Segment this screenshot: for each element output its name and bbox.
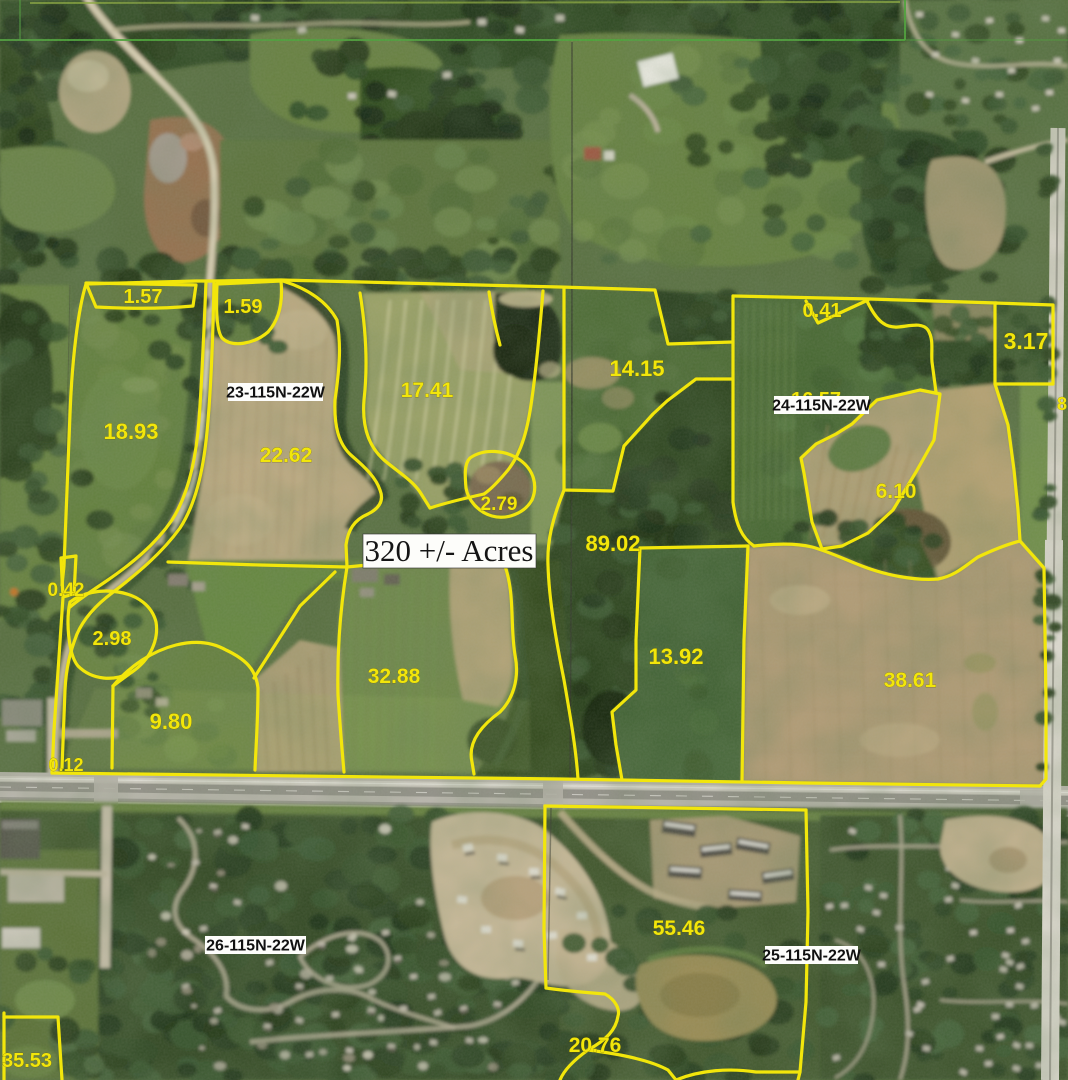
svg-text:22.62: 22.62 bbox=[260, 444, 313, 467]
svg-text:14.15: 14.15 bbox=[609, 356, 664, 381]
svg-text:25-115N-22W: 25-115N-22W bbox=[762, 948, 862, 965]
svg-text:9.80: 9.80 bbox=[150, 709, 193, 734]
svg-text:55.46: 55.46 bbox=[653, 917, 706, 940]
svg-text:0.41: 0.41 bbox=[803, 300, 842, 322]
svg-text:20.76: 20.76 bbox=[569, 1034, 622, 1057]
svg-text:6.10: 6.10 bbox=[876, 480, 917, 503]
svg-text:2.98: 2.98 bbox=[93, 628, 132, 650]
svg-text:32.88: 32.88 bbox=[368, 665, 421, 688]
svg-text:8: 8 bbox=[1057, 394, 1067, 414]
svg-text:26-115N-22W: 26-115N-22W bbox=[206, 938, 306, 955]
svg-text:24-115N-22W: 24-115N-22W bbox=[772, 398, 872, 415]
svg-text:0.42: 0.42 bbox=[48, 580, 85, 601]
svg-text:2.79: 2.79 bbox=[481, 494, 518, 515]
svg-text:89.02: 89.02 bbox=[585, 531, 640, 556]
svg-text:320 +/- Acres: 320 +/- Acres bbox=[364, 533, 533, 568]
svg-text:0.12: 0.12 bbox=[48, 755, 83, 775]
svg-text:1.59: 1.59 bbox=[224, 296, 263, 318]
svg-text:17.41: 17.41 bbox=[401, 379, 454, 402]
svg-text:23-115N-22W: 23-115N-22W bbox=[226, 385, 326, 402]
svg-text:3.17: 3.17 bbox=[1004, 328, 1049, 354]
svg-text:38.61: 38.61 bbox=[884, 669, 937, 692]
svg-text:13.92: 13.92 bbox=[648, 644, 703, 669]
svg-text:18.93: 18.93 bbox=[103, 419, 158, 444]
svg-text:35.53: 35.53 bbox=[2, 1050, 52, 1072]
svg-text:1.57: 1.57 bbox=[124, 286, 163, 308]
